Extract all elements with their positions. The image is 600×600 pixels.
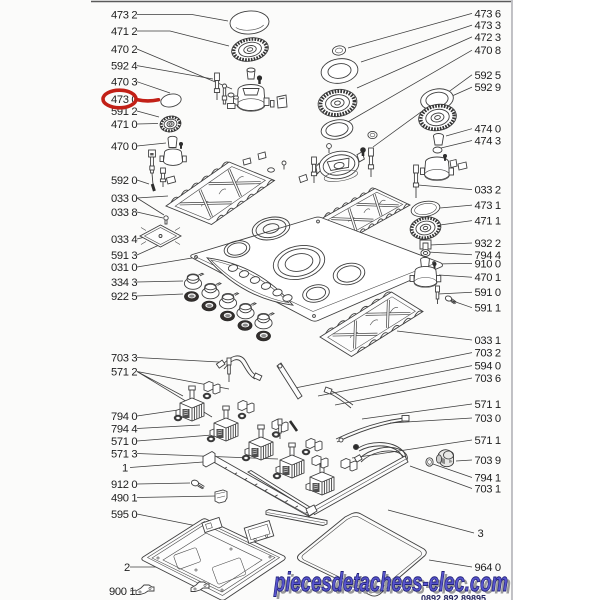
svg-text:1: 1 xyxy=(122,463,128,475)
svg-text:033 4: 033 4 xyxy=(111,234,137,246)
svg-text:703 2: 703 2 xyxy=(475,348,501,360)
svg-text:571 1: 571 1 xyxy=(475,435,501,447)
svg-text:571 3: 571 3 xyxy=(111,449,137,461)
svg-text:470 8: 470 8 xyxy=(475,45,501,57)
svg-text:703 9: 703 9 xyxy=(475,455,501,467)
svg-text:910 0: 910 0 xyxy=(475,258,501,270)
svg-text:595 0: 595 0 xyxy=(111,509,137,521)
svg-text:592 0: 592 0 xyxy=(111,175,137,187)
svg-text:470 3: 470 3 xyxy=(111,77,137,89)
svg-text:033 0: 033 0 xyxy=(111,193,137,205)
svg-text:472 3: 472 3 xyxy=(475,32,501,44)
svg-text:473 2: 473 2 xyxy=(111,10,137,22)
svg-text:piecesdetachees-elec.com: piecesdetachees-elec.com xyxy=(273,567,508,597)
svg-text:571 2: 571 2 xyxy=(111,367,137,379)
svg-text:571 1: 571 1 xyxy=(475,399,501,411)
svg-text:473 3: 473 3 xyxy=(475,20,501,32)
svg-text:703 1: 703 1 xyxy=(475,484,501,496)
svg-text:3: 3 xyxy=(478,528,484,540)
svg-text:474 3: 474 3 xyxy=(475,136,501,148)
svg-text:470 1: 470 1 xyxy=(475,272,501,284)
svg-text:794 4: 794 4 xyxy=(111,424,137,436)
svg-text:471 2: 471 2 xyxy=(111,26,137,38)
svg-text:703 0: 703 0 xyxy=(475,413,501,425)
svg-text:473 1: 473 1 xyxy=(475,200,501,212)
svg-text:592 5: 592 5 xyxy=(475,70,501,82)
svg-text:594 0: 594 0 xyxy=(475,361,501,373)
svg-text:033 1: 033 1 xyxy=(475,335,501,347)
svg-text:0892 892 89895: 0892 892 89895 xyxy=(421,594,486,600)
svg-text:592 4: 592 4 xyxy=(111,61,137,73)
svg-text:900 1: 900 1 xyxy=(109,586,135,598)
svg-text:571 0: 571 0 xyxy=(111,436,137,448)
svg-text:471 1: 471 1 xyxy=(475,216,501,228)
svg-text:2: 2 xyxy=(124,562,130,574)
svg-text:470 0: 470 0 xyxy=(111,141,137,153)
svg-text:334 3: 334 3 xyxy=(111,277,137,289)
svg-text:591 3: 591 3 xyxy=(111,250,137,262)
svg-text:471 0: 471 0 xyxy=(111,119,137,131)
svg-text:033 8: 033 8 xyxy=(111,207,137,219)
svg-text:591 1: 591 1 xyxy=(475,303,501,315)
svg-text:033 2: 033 2 xyxy=(475,185,501,197)
svg-text:473 6: 473 6 xyxy=(475,8,501,20)
svg-text:922 5: 922 5 xyxy=(111,291,137,303)
svg-text:932 2: 932 2 xyxy=(475,238,501,250)
svg-text:591 0: 591 0 xyxy=(475,287,501,299)
svg-text:031 0: 031 0 xyxy=(111,262,137,274)
svg-text:912 0: 912 0 xyxy=(111,479,137,491)
svg-text:470 2: 470 2 xyxy=(111,44,137,56)
svg-text:703 6: 703 6 xyxy=(475,373,501,385)
svg-text:490 1: 490 1 xyxy=(111,493,137,505)
svg-text:794 0: 794 0 xyxy=(111,411,137,423)
svg-text:474 0: 474 0 xyxy=(475,124,501,136)
svg-text:703 3: 703 3 xyxy=(111,353,137,365)
svg-text:592 9: 592 9 xyxy=(475,82,501,94)
